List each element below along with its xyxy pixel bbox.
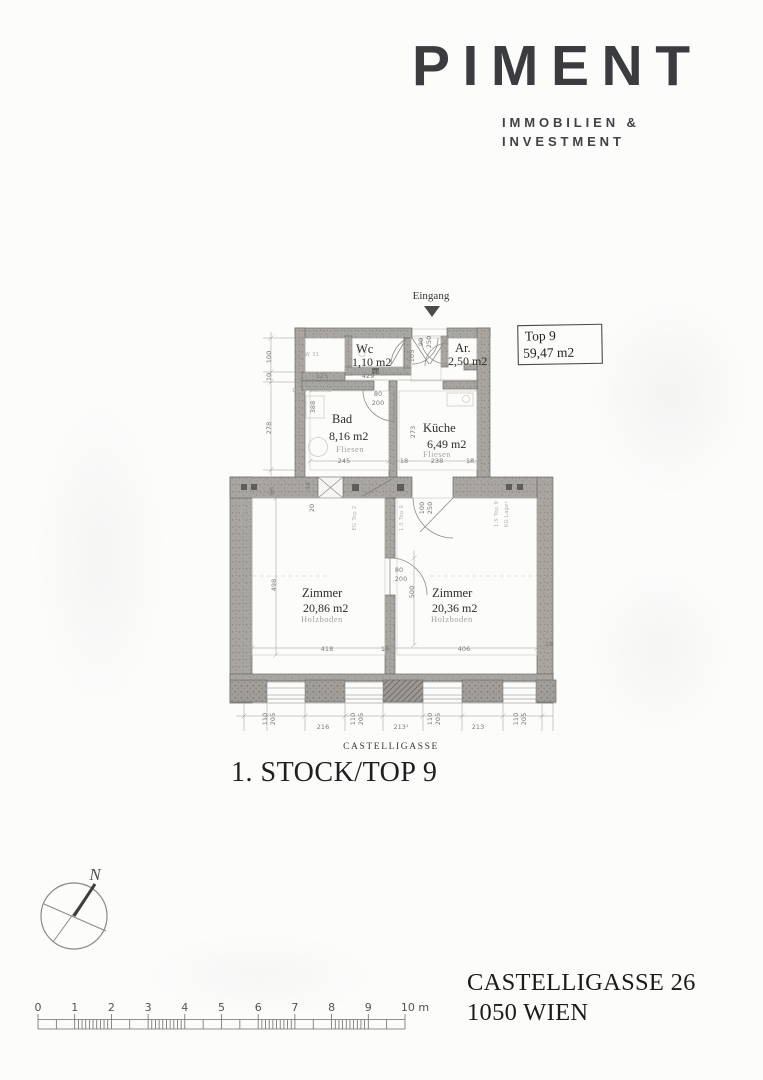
dim-label: 18	[400, 457, 408, 465]
wall-annotations: IW 311.O 5 LichthofEG Top 41.S Top 8EG T…	[240, 352, 510, 531]
dim-label: 250	[426, 502, 434, 514]
door-swings	[363, 338, 453, 595]
dim-label: 86	[268, 487, 276, 495]
scale-label: 8	[328, 1001, 335, 1014]
dim-label: 250	[425, 336, 433, 348]
dim-label: 213¹	[393, 723, 408, 731]
room-name: Wc	[356, 342, 374, 356]
dim-label: 10	[265, 373, 273, 381]
scanned-floorplan-page: PIMENT IMMOBILIEN & INVESTMENT 1. STOCK/…	[0, 0, 763, 1080]
dim-label: 205	[434, 713, 442, 725]
room-area: 2,50 m2	[448, 354, 487, 368]
room-floor: Fliesen	[336, 444, 364, 454]
room-floor: Fliesen	[358, 366, 386, 376]
dim-label: 110	[349, 713, 357, 725]
dim-label: 90	[417, 338, 425, 346]
dim-label: 110	[261, 713, 269, 725]
compass-north-label: N	[88, 865, 102, 884]
room-area: 8,16 m2	[329, 429, 368, 443]
scale-bar: 012345678910 m	[35, 1001, 430, 1029]
dim-label: 418	[321, 645, 333, 653]
dim-label: 216	[317, 723, 329, 731]
unit-number: Top 9	[525, 328, 556, 344]
dim-label: 500	[408, 586, 416, 598]
room-name: Zimmer	[432, 586, 473, 600]
dim-label: 80	[374, 390, 382, 398]
scale-label: 5	[218, 1001, 225, 1014]
wall-annotation: 1.O 5 Lichthof	[292, 388, 333, 394]
room-floor: Holzboden	[301, 614, 343, 624]
wall-annotation: 1.S Top 8	[248, 499, 254, 525]
dim-label: 205	[357, 713, 365, 725]
scale-bar-ticks	[38, 1014, 405, 1029]
dim-label: 213	[472, 723, 484, 731]
dim-label: 18	[466, 457, 474, 465]
scale-label: 10 m	[401, 1001, 429, 1014]
wall-annotation: EG Top 2	[352, 505, 358, 530]
dim-label: 110	[426, 713, 434, 725]
dim-label: 110	[512, 713, 520, 725]
dim-label: 273	[409, 426, 417, 438]
dim-label: 100	[418, 502, 426, 514]
scale-label: 2	[108, 1001, 115, 1014]
dim-label: 18	[381, 645, 389, 653]
dim-label: 498	[270, 579, 278, 591]
room-name: Ar.	[455, 341, 471, 355]
wall-annotation: 1.S Top 9	[494, 501, 500, 527]
room-floor: Fliesen	[423, 449, 451, 459]
dim-label: 80	[395, 566, 403, 574]
room-floor: Holzboden	[431, 614, 473, 624]
dim-label: 125	[316, 372, 328, 380]
dim-label: 278	[265, 422, 273, 434]
scale-label: 0	[35, 1001, 42, 1014]
wall-annotation: IW 31	[303, 352, 319, 358]
scale-label: 1	[71, 1001, 78, 1014]
dim-label: 105	[408, 350, 416, 362]
dim-label: 245	[338, 457, 350, 465]
room-name: Bad	[332, 412, 353, 426]
dim-label: 18	[545, 640, 553, 648]
dim-label: 200	[395, 575, 407, 583]
dim-label: 388	[309, 401, 317, 413]
compass: N	[41, 865, 107, 949]
dim-label: 20	[308, 504, 316, 512]
unit-info-box: Top 9 59,47 m2	[518, 324, 603, 364]
dim-label: 205	[269, 713, 277, 725]
entrance-label: Eingang	[413, 290, 450, 302]
wall-annotation: KG Lager	[504, 500, 510, 527]
scale-label: 4	[181, 1001, 188, 1014]
scale-label: 7	[291, 1001, 298, 1014]
dim-label: 100	[265, 351, 273, 363]
room-name: Zimmer	[302, 586, 343, 600]
entrance-arrow-icon	[424, 306, 440, 317]
wall-annotation: 1.S Top 9	[399, 505, 405, 531]
room-area: 20,36 m2	[432, 601, 477, 615]
scale-label: 3	[145, 1001, 152, 1014]
room-area: 20,86 m2	[303, 601, 348, 615]
scale-label: 6	[255, 1001, 262, 1014]
unit-area: 59,47 m2	[523, 345, 574, 361]
scale-label: 9	[365, 1001, 372, 1014]
street-label: CASTELLIGASSE	[343, 742, 439, 752]
dim-label: 200	[372, 399, 384, 407]
dim-label: 205	[520, 713, 528, 725]
floorplan-drawing: Eingang Top 9 59,47 m2	[0, 0, 763, 1080]
dim-label: 44	[304, 482, 312, 490]
dim-label: 406	[458, 645, 470, 653]
room-name: Küche	[423, 421, 456, 435]
wall-annotation: EG Top 4	[240, 499, 246, 524]
